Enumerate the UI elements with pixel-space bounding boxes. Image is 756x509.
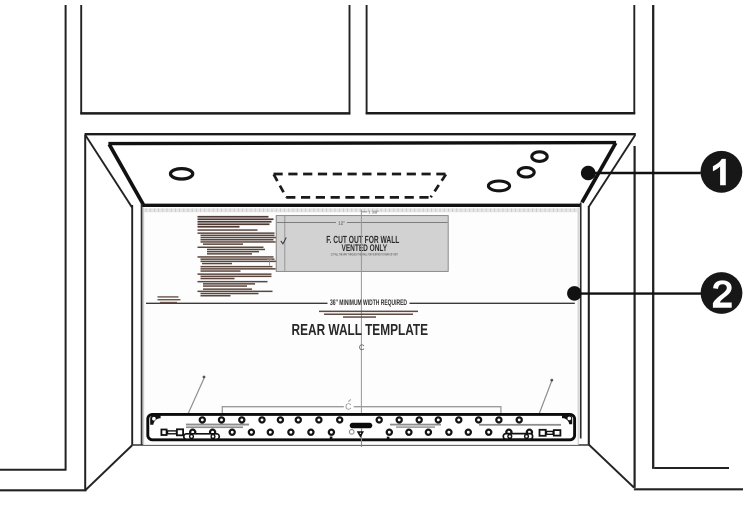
svg-text:1 3/8″: 1 3/8″ [368, 210, 379, 215]
svg-text:REAR WALL TEMPLATE: REAR WALL TEMPLATE [292, 322, 429, 339]
svg-text:12″: 12″ [338, 220, 345, 225]
svg-text:C: C [359, 343, 365, 352]
svg-text:CUT ALL THE WAY THROUGH THE WA: CUT ALL THE WAY THROUGH THE WALL FOR VEN… [331, 252, 398, 256]
svg-text:36″ MINIMUM WIDTH REQUIRED: 36″ MINIMUM WIDTH REQUIRED [330, 298, 407, 307]
svg-text:C: C [345, 402, 352, 412]
